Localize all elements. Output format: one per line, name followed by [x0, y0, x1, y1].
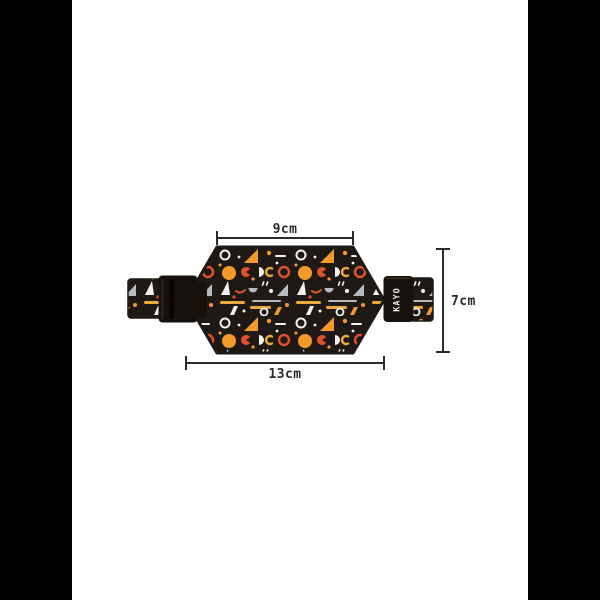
height-label: 7cm — [451, 294, 476, 309]
product-dimension-diagram: KAYO 9cm 13cm 7cm — [0, 0, 600, 600]
top-width-label: 9cm — [273, 222, 298, 237]
product-photo-frame: KAYO 9cm 13cm 7cm — [0, 0, 600, 600]
bottom-width-label: 13cm — [269, 367, 302, 382]
right-buckle: KAYO — [384, 276, 414, 322]
left-buckle-highlight — [162, 279, 164, 319]
left-buckle-slot — [169, 279, 174, 319]
left-buckle-body — [159, 276, 198, 323]
left-buckle — [159, 276, 208, 323]
bag-body — [186, 247, 384, 353]
right-buckle-highlight — [386, 278, 411, 280]
brand-logo-text: KAYO — [393, 287, 403, 311]
